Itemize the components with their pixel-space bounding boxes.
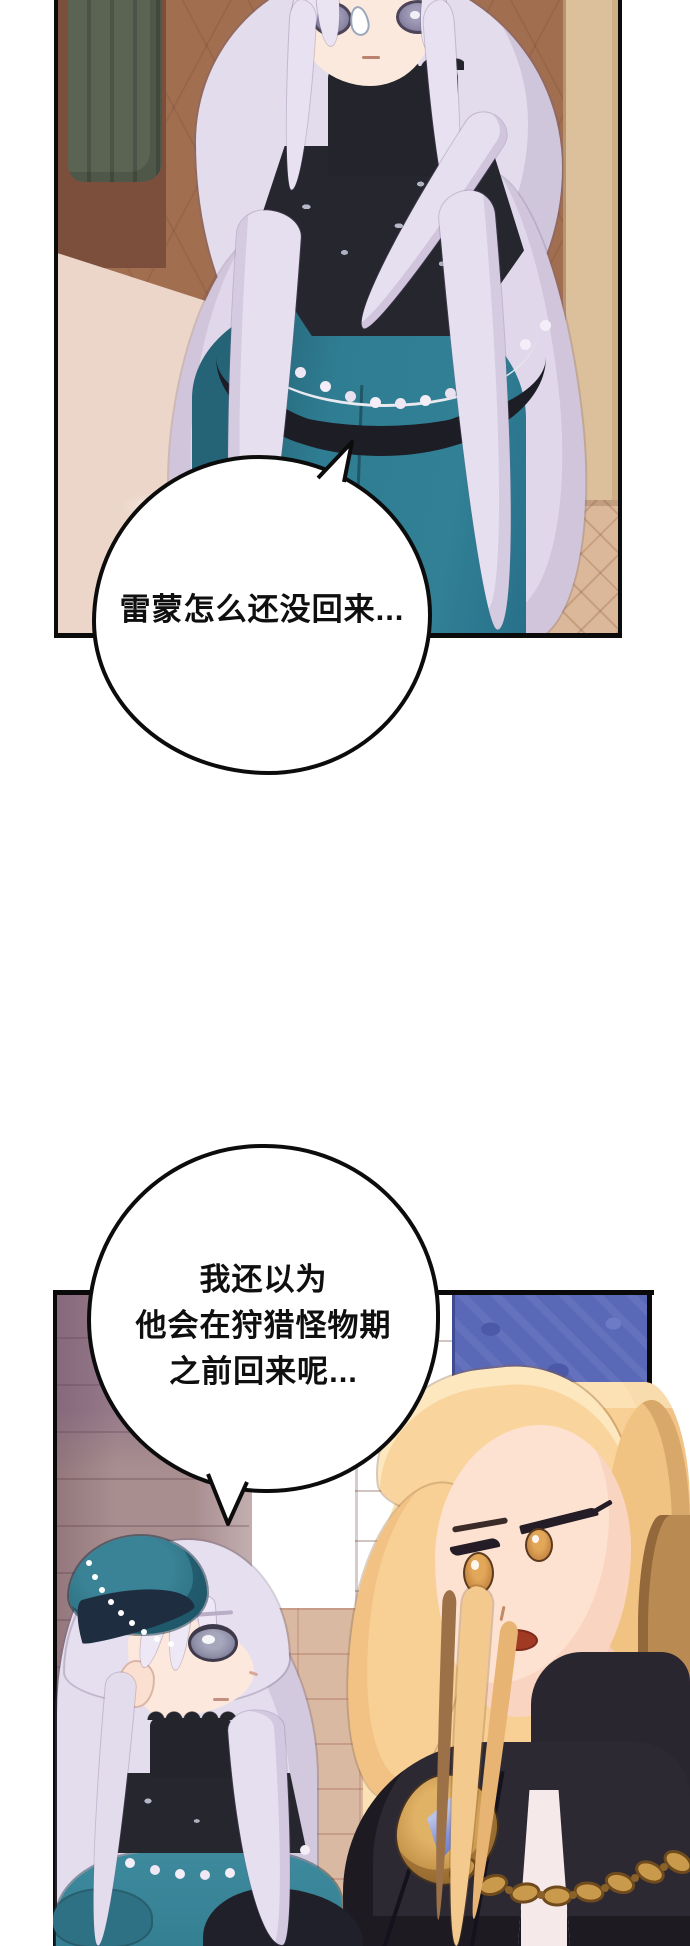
girl-mouth [362,56,380,59]
speech-bubble-1-text: 雷蒙怎么还没回来... [120,587,405,643]
speech-bubble-2: 我还以为 他会在狩猎怪物期 之前回来呢... [87,1144,440,1493]
speech-bubble-1: 雷蒙怎么还没回来... [92,455,432,775]
speech-bubble-2-line2: 他会在狩猎怪物期 [136,1303,392,1349]
speech-bubble-2-tail [195,1462,265,1532]
girl2-eye [188,1624,238,1662]
speech-bubble-2-line3: 之前回来呢... [136,1349,392,1395]
comic-page: 雷蒙怎么还没回来... [0,0,690,1946]
girl2-mouth [213,1698,229,1701]
speech-bubble-2-line1: 我还以为 [136,1257,392,1303]
green-curtain [68,0,162,182]
blonde-right-eye [525,1528,553,1562]
girl2-high-collar [150,1718,232,1778]
beret-pearl-trim [86,1560,92,1566]
speech-bubble-1-tail [300,430,370,492]
speech-bubble-2-text: 我还以为 他会在狩猎怪物期 之前回来呢... [136,1243,392,1395]
